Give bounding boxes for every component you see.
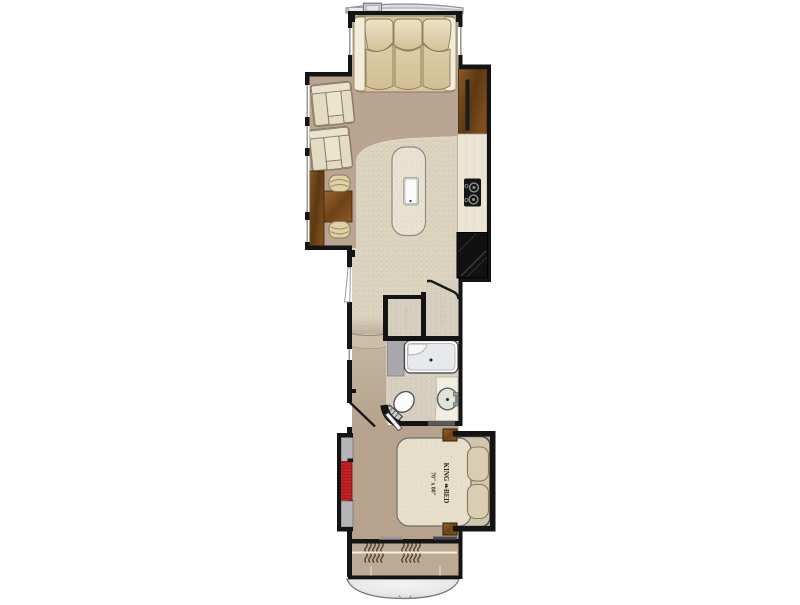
svg-text:70" x 80": 70" x 80" [430, 472, 436, 496]
svg-text:WASH: WASH [402, 307, 409, 330]
svg-text:DRYER: DRYER [438, 298, 445, 326]
svg-text:KING ❧BED: KING ❧BED [442, 463, 450, 504]
